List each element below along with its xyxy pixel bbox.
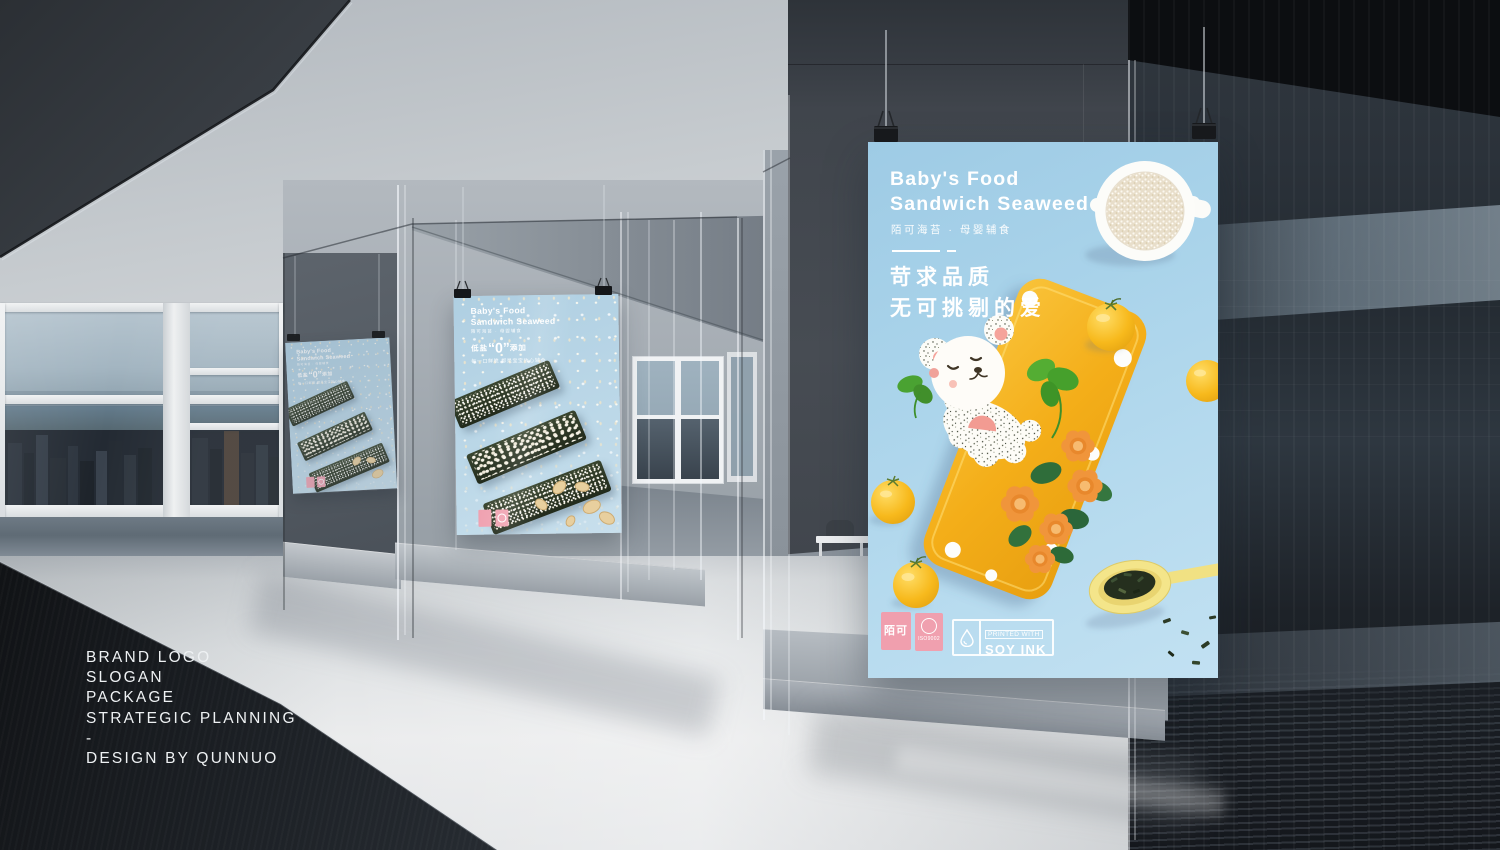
glass-edge [700, 212, 702, 580]
credit-line: STRATEGIC PLANNING [86, 709, 426, 729]
poster-subtitle: 陌可海苔 · 母婴辅食 [891, 222, 1012, 237]
window-pane [637, 419, 675, 479]
design-showroom-render: BRAND LOGO SLOGAN PACKAGE STRATEGIC PLAN… [0, 0, 1500, 850]
credits-list: BRAND LOGO SLOGAN PACKAGE STRATEGIC PLAN… [86, 648, 426, 769]
glass-edge [397, 185, 399, 640]
credit-line: DESIGN BY QUNNUO [86, 749, 426, 769]
glass-edge [741, 218, 743, 638]
poster-title-line: Sandwich Seaweed [890, 192, 1089, 217]
window-rail [633, 415, 723, 419]
glass-sheen [453, 294, 621, 535]
glass-edge [737, 218, 739, 640]
soyink-logo: PRINTED WITH SOY INK [952, 619, 1054, 656]
soyink-top-label: PRINTED WITH [985, 630, 1043, 639]
soyink-bottom-label: SOY INK [985, 642, 1052, 657]
sesame-bowl [1085, 161, 1213, 266]
tomato [1186, 360, 1218, 402]
cert-circle-icon [921, 618, 937, 634]
brand-logo: 陌可 [881, 612, 911, 650]
wall-ceiling-line [788, 64, 1133, 65]
glass-edge [673, 220, 675, 570]
glass-veil [285, 337, 397, 493]
glass-edge [627, 212, 629, 592]
glass-edge [283, 253, 285, 610]
tomato [869, 476, 915, 526]
wall-corner-line [1083, 64, 1084, 144]
glass-edge [648, 220, 650, 580]
credit-line: - [86, 729, 426, 749]
table [816, 536, 870, 543]
poster-secondary: Baby's Food Sandwich Seaweed 陌可海苔 · 母婴辅食… [453, 294, 621, 535]
glass-sheen [0, 303, 283, 517]
poster-title: Baby's Food Sandwich Seaweed [890, 167, 1089, 216]
poster-main: Baby's Food Sandwich Seaweed 陌可海苔 · 母婴辅食… [868, 142, 1218, 678]
poster-secondary-far: Baby's Food Sandwich Seaweed 陌可海苔 · 母婴辅食… [285, 337, 398, 494]
glass-edge [412, 218, 414, 638]
glass-edge [763, 150, 765, 720]
soyink-droplet-icon [954, 621, 981, 654]
credit-line: PACKAGE [86, 688, 426, 708]
poster-slogan-line: 苛求品质 [890, 262, 1046, 293]
glass-edge [404, 185, 406, 635]
seaweed-flakes [1163, 615, 1217, 665]
glass-edge [620, 212, 622, 600]
seaweed-spoon [1076, 545, 1218, 633]
poster-slogan: 苛求品质 无可挑剔的爱 [890, 262, 1046, 324]
poster-slogan-line: 无可挑剔的爱 [890, 293, 1046, 324]
poster-divider [892, 242, 956, 260]
backroom-window [633, 357, 723, 483]
glass-edge [770, 150, 772, 710]
poster-title-line: Baby's Food [890, 167, 1089, 192]
cert-badge: ISO9002 [915, 613, 943, 651]
window-wall [0, 303, 283, 517]
credit-line: BRAND LOGO [86, 648, 426, 668]
credit-line: SLOGAN [86, 668, 426, 688]
glass-edge [788, 95, 790, 735]
cert-label: ISO9002 [915, 636, 943, 642]
